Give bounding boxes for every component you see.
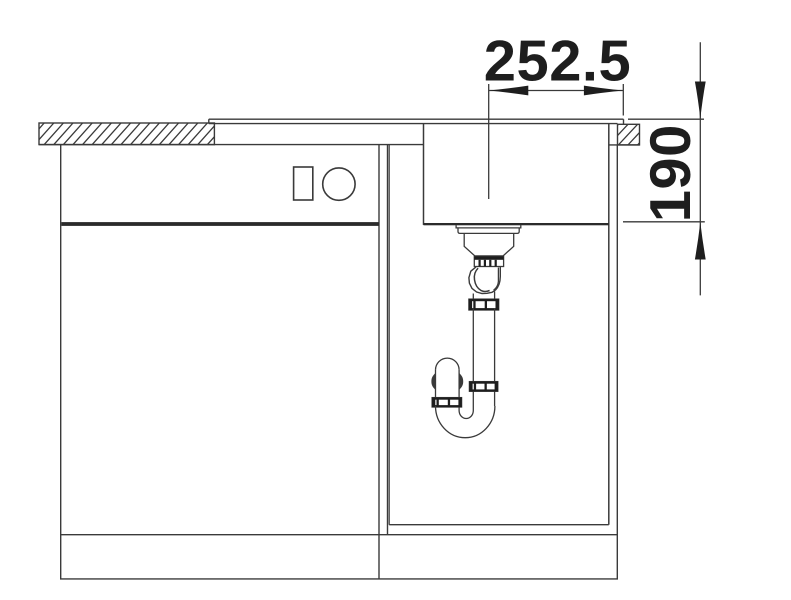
svg-text:252.5: 252.5: [484, 29, 631, 93]
svg-text:190: 190: [639, 124, 703, 222]
